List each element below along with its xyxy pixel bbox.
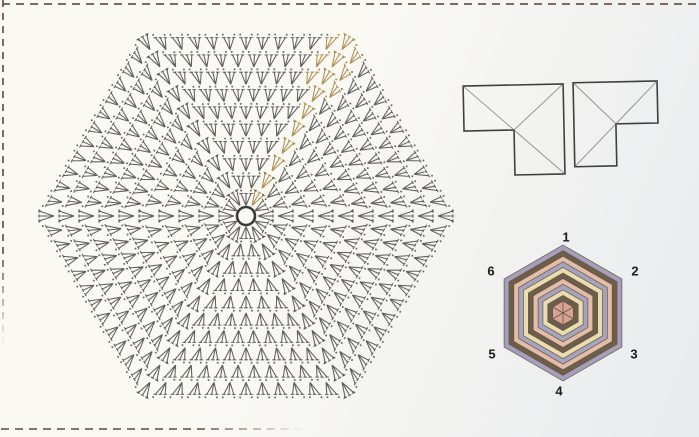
assembly-right-piece (573, 81, 659, 167)
page-border-top (2, 3, 699, 5)
color-key-hexagon: 1 2 3 4 5 6 (478, 226, 648, 398)
pattern-page: 1 2 3 4 5 6 (0, 0, 699, 437)
cluster-stitches (39, 33, 453, 398)
crochet-chart-rounds (39, 33, 453, 398)
side-label-5: 5 (488, 346, 495, 361)
assembly-diagram (455, 72, 669, 184)
side-label-2: 2 (631, 263, 638, 278)
side-label-1: 1 (562, 229, 569, 244)
color-key-rings (504, 245, 622, 381)
side-label-4: 4 (555, 383, 563, 398)
crochet-hexagon-chart (24, 16, 470, 414)
center-ring-symbol (237, 207, 255, 225)
side-label-6: 6 (487, 263, 494, 278)
assembly-left-piece (463, 84, 565, 176)
side-label-3: 3 (630, 346, 637, 361)
page-border-bottom (1, 428, 306, 430)
page-border-left (2, 0, 4, 348)
